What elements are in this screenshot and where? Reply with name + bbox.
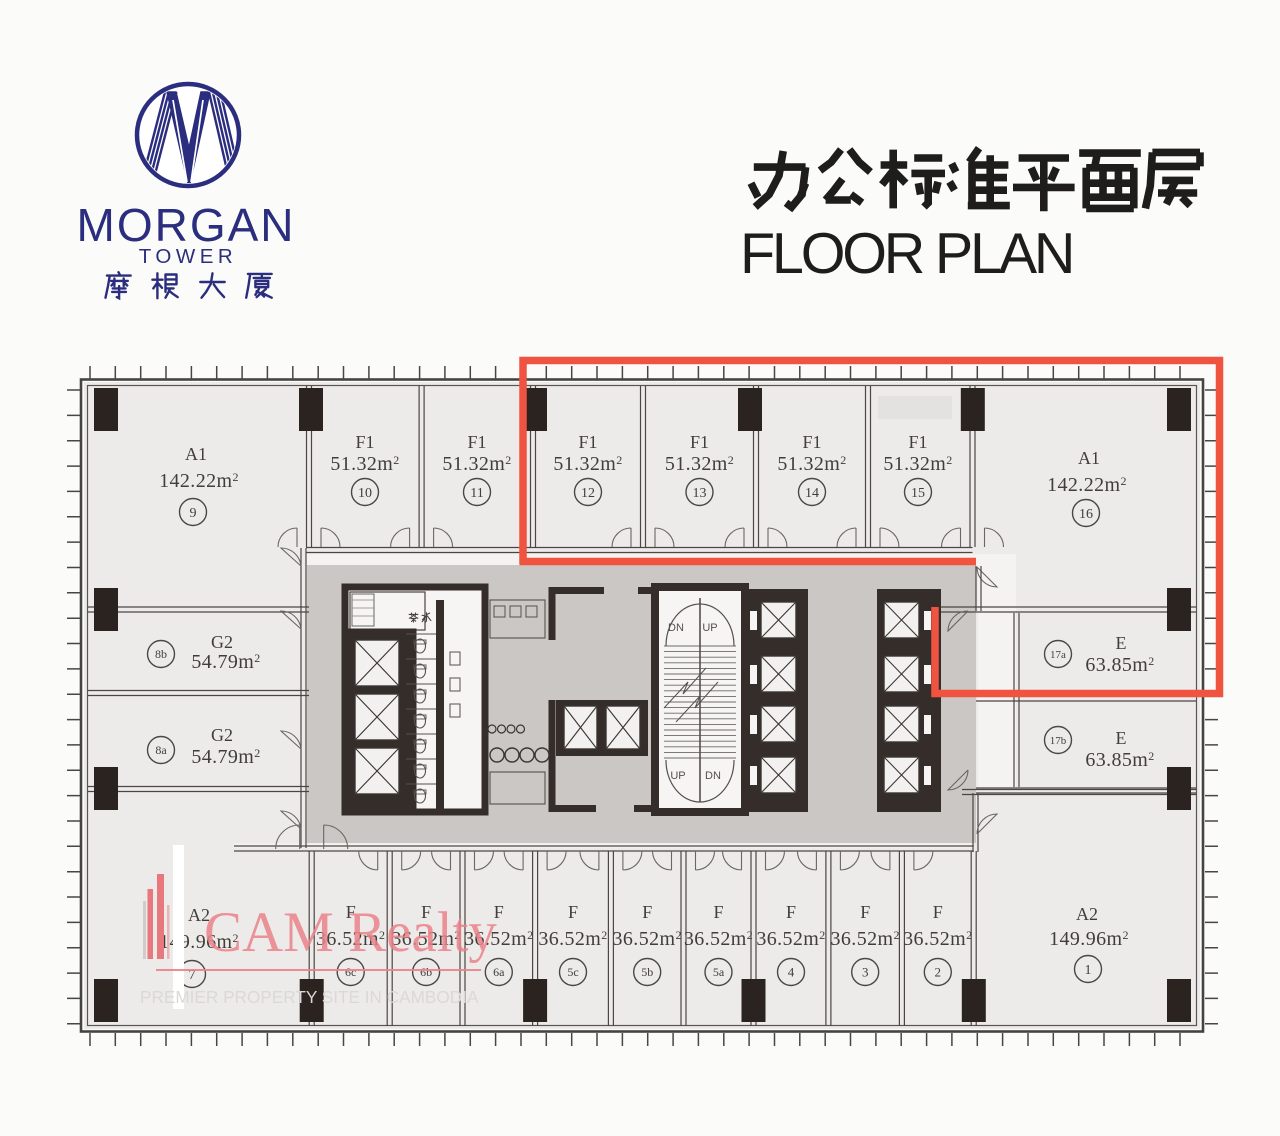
svg-text:CAM Realty: CAM Realty bbox=[204, 901, 497, 964]
svg-text:9: 9 bbox=[190, 506, 197, 521]
svg-text:F1: F1 bbox=[802, 432, 821, 452]
svg-text:FLOOR PLAN: FLOOR PLAN bbox=[740, 222, 1072, 286]
svg-text:51.32m2: 51.32m2 bbox=[442, 453, 511, 475]
svg-text:F1: F1 bbox=[690, 432, 709, 452]
svg-text:PREMIER PROPERTY SITE IN CAMBO: PREMIER PROPERTY SITE IN CAMBODIA bbox=[140, 987, 479, 1007]
svg-text:F: F bbox=[713, 902, 723, 922]
svg-text:36.52m2: 36.52m2 bbox=[538, 928, 607, 950]
svg-text:8a: 8a bbox=[155, 743, 167, 757]
svg-text:G2: G2 bbox=[211, 725, 233, 745]
svg-text:51.32m2: 51.32m2 bbox=[777, 453, 846, 475]
svg-text:6b: 6b bbox=[420, 965, 432, 979]
svg-text:1: 1 bbox=[1085, 963, 1092, 978]
svg-text:F: F bbox=[933, 902, 943, 922]
svg-text:51.32m2: 51.32m2 bbox=[330, 453, 399, 475]
svg-text:E: E bbox=[1116, 728, 1127, 748]
svg-text:63.85m2: 63.85m2 bbox=[1085, 749, 1154, 771]
svg-text:6a: 6a bbox=[493, 965, 505, 979]
svg-text:17a: 17a bbox=[1050, 649, 1066, 661]
svg-text:UP: UP bbox=[702, 622, 717, 634]
svg-text:3: 3 bbox=[862, 965, 869, 980]
svg-text:36.52m2: 36.52m2 bbox=[613, 928, 682, 950]
svg-text:5b: 5b bbox=[641, 965, 653, 979]
svg-text:F1: F1 bbox=[908, 432, 927, 452]
svg-text:F1: F1 bbox=[467, 432, 486, 452]
svg-text:54.79m2: 54.79m2 bbox=[191, 746, 260, 768]
svg-text:15: 15 bbox=[911, 486, 925, 501]
svg-text:MORGAN: MORGAN bbox=[77, 199, 296, 251]
svg-text:149.96m2: 149.96m2 bbox=[1049, 928, 1129, 950]
svg-text:13: 13 bbox=[693, 486, 707, 501]
svg-text:51.32m2: 51.32m2 bbox=[553, 453, 622, 475]
svg-text:F: F bbox=[786, 902, 796, 922]
svg-text:36.52m2: 36.52m2 bbox=[831, 928, 900, 950]
svg-text:F: F bbox=[860, 902, 870, 922]
svg-text:14: 14 bbox=[805, 486, 819, 501]
svg-text:8b: 8b bbox=[155, 647, 167, 661]
svg-text:12: 12 bbox=[581, 486, 595, 501]
svg-text:6c: 6c bbox=[345, 965, 356, 979]
svg-text:TOWER: TOWER bbox=[139, 245, 237, 268]
svg-text:16: 16 bbox=[1079, 507, 1093, 522]
svg-text:54.79m2: 54.79m2 bbox=[191, 651, 260, 673]
svg-text:A1: A1 bbox=[185, 444, 207, 464]
svg-text:51.32m2: 51.32m2 bbox=[665, 453, 734, 475]
svg-text:F: F bbox=[568, 902, 578, 922]
svg-text:142.22m2: 142.22m2 bbox=[1047, 474, 1127, 496]
svg-text:E: E bbox=[1116, 633, 1127, 653]
svg-text:UP: UP bbox=[670, 770, 685, 782]
svg-text:F1: F1 bbox=[578, 432, 597, 452]
svg-text:4: 4 bbox=[788, 965, 795, 980]
svg-text:DN: DN bbox=[705, 770, 721, 782]
svg-text:2: 2 bbox=[935, 965, 942, 980]
svg-text:36.52m2: 36.52m2 bbox=[903, 928, 972, 950]
svg-text:63.85m2: 63.85m2 bbox=[1085, 654, 1154, 676]
svg-text:F1: F1 bbox=[355, 432, 374, 452]
svg-text:51.32m2: 51.32m2 bbox=[883, 453, 952, 475]
svg-text:10: 10 bbox=[358, 486, 372, 501]
svg-text:5a: 5a bbox=[713, 965, 725, 979]
svg-text:A2: A2 bbox=[1076, 904, 1098, 924]
svg-text:DN: DN bbox=[668, 622, 684, 634]
svg-text:17b: 17b bbox=[1050, 735, 1067, 747]
svg-text:36.52m2: 36.52m2 bbox=[684, 928, 753, 950]
svg-text:F: F bbox=[642, 902, 652, 922]
svg-text:G2: G2 bbox=[211, 632, 233, 652]
svg-text:36.52m2: 36.52m2 bbox=[756, 928, 825, 950]
svg-text:11: 11 bbox=[470, 486, 483, 501]
svg-text:5c: 5c bbox=[567, 965, 578, 979]
svg-text:A1: A1 bbox=[1078, 448, 1100, 468]
svg-text:142.22m2: 142.22m2 bbox=[159, 470, 239, 492]
